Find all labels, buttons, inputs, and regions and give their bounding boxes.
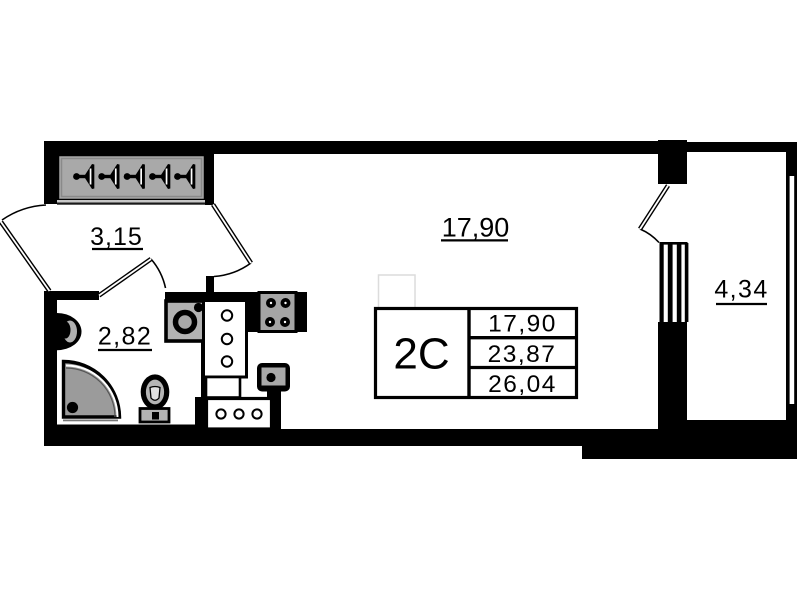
svg-text:3,15: 3,15 [90,223,143,251]
svg-text:17,90: 17,90 [488,311,557,338]
svg-text:17,90: 17,90 [442,213,510,243]
svg-text:2С: 2С [393,330,449,379]
svg-text:26,04: 26,04 [488,371,557,398]
svg-text:2,82: 2,82 [98,323,152,351]
svg-text:4,34: 4,34 [714,276,768,304]
svg-text:23,87: 23,87 [488,341,557,368]
